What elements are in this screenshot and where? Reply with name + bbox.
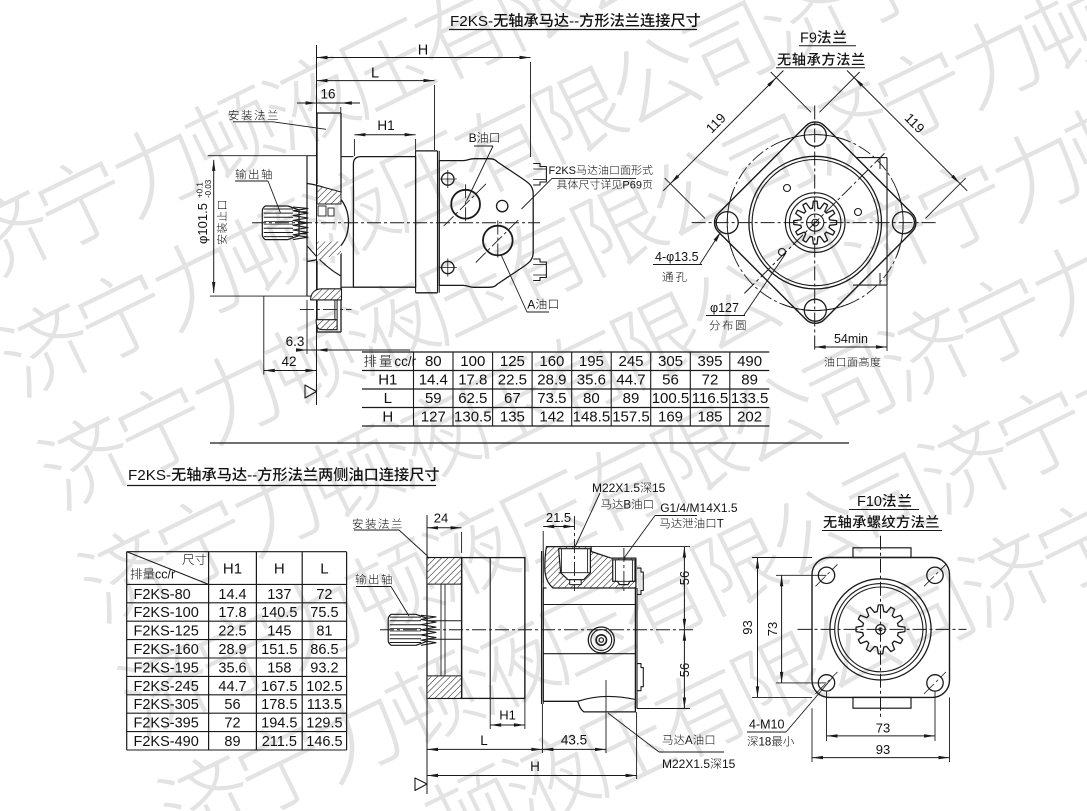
- svg-text:395: 395: [697, 353, 722, 370]
- svg-text:490: 490: [737, 353, 762, 370]
- svg-text:14.4: 14.4: [218, 587, 246, 603]
- svg-text:F2KS: F2KS: [549, 165, 577, 177]
- svg-text:F2KS-: F2KS-: [128, 467, 171, 484]
- svg-text:T: T: [717, 519, 724, 531]
- svg-text:129.5: 129.5: [306, 716, 342, 732]
- svg-text:F2KS-395: F2KS-395: [134, 716, 199, 732]
- svg-text:73: 73: [765, 622, 780, 636]
- svg-text:22.5: 22.5: [218, 624, 246, 640]
- svg-text:F2KS-245: F2KS-245: [134, 679, 199, 695]
- svg-text:169: 169: [658, 409, 683, 426]
- svg-text:44.7: 44.7: [616, 372, 645, 389]
- svg-text:211.5: 211.5: [262, 734, 297, 750]
- svg-text:148.5: 148.5: [573, 409, 611, 426]
- svg-text:158: 158: [267, 660, 291, 676]
- svg-text:-0.03: -0.03: [204, 179, 213, 198]
- svg-text:125: 125: [500, 353, 525, 370]
- svg-text:100.5: 100.5: [652, 390, 690, 407]
- svg-text:L: L: [480, 733, 488, 748]
- svg-text:151.5: 151.5: [261, 642, 297, 658]
- svg-text:A: A: [685, 735, 693, 747]
- svg-text:17.8: 17.8: [218, 605, 246, 621]
- svg-text:80: 80: [425, 353, 442, 370]
- svg-text:15: 15: [652, 481, 666, 495]
- svg-text:H: H: [418, 43, 428, 59]
- svg-text:59: 59: [425, 390, 442, 407]
- svg-text:21.5: 21.5: [546, 510, 571, 525]
- svg-text:157.5: 157.5: [612, 409, 650, 426]
- svg-text:18: 18: [759, 737, 772, 749]
- svg-text:93: 93: [876, 742, 890, 757]
- svg-text:202: 202: [737, 409, 762, 426]
- svg-text:44.7: 44.7: [218, 679, 246, 695]
- svg-text:195: 195: [579, 353, 604, 370]
- svg-text:F9: F9: [800, 31, 817, 47]
- svg-text:φ101.5: φ101.5: [195, 203, 210, 244]
- svg-text:178.5: 178.5: [261, 697, 297, 713]
- svg-text:42: 42: [281, 354, 296, 369]
- svg-text:100: 100: [460, 353, 485, 370]
- svg-text:P69: P69: [622, 180, 642, 192]
- svg-text:F2KS-195: F2KS-195: [134, 660, 199, 676]
- svg-text:H1: H1: [499, 708, 516, 723]
- svg-text:305: 305: [658, 353, 683, 370]
- svg-text:56: 56: [677, 571, 692, 585]
- svg-text:167.5: 167.5: [261, 679, 297, 695]
- svg-text:89: 89: [623, 390, 640, 407]
- svg-text:F2KS-160: F2KS-160: [134, 642, 199, 658]
- svg-text:127: 127: [421, 409, 446, 426]
- svg-text:72: 72: [702, 372, 719, 389]
- svg-text:72: 72: [224, 716, 240, 732]
- svg-text:130.5: 130.5: [454, 409, 492, 426]
- svg-text:75.5: 75.5: [310, 605, 338, 621]
- svg-text:H1: H1: [377, 118, 394, 133]
- svg-text:φ127: φ127: [710, 301, 739, 315]
- svg-text:22.5: 22.5: [498, 372, 527, 389]
- svg-text:--: --: [247, 467, 257, 484]
- svg-text:B: B: [623, 500, 631, 512]
- svg-text:H: H: [382, 409, 393, 426]
- svg-text:B: B: [469, 131, 477, 145]
- svg-text:H1: H1: [378, 372, 397, 389]
- svg-text:93.2: 93.2: [310, 660, 338, 676]
- svg-text:4-M10: 4-M10: [749, 718, 784, 732]
- svg-text:F2KS-490: F2KS-490: [134, 734, 199, 750]
- svg-text:142: 142: [539, 409, 564, 426]
- svg-text:245: 245: [618, 353, 643, 370]
- svg-text:43.5: 43.5: [561, 733, 587, 748]
- svg-text:4-φ13.5: 4-φ13.5: [655, 250, 699, 264]
- svg-text:73: 73: [876, 721, 890, 736]
- svg-text:160: 160: [539, 353, 564, 370]
- svg-text:146.5: 146.5: [306, 734, 342, 750]
- svg-text:194.5: 194.5: [261, 716, 297, 732]
- svg-text:M22X1.5: M22X1.5: [662, 757, 710, 771]
- svg-text:102.5: 102.5: [306, 679, 342, 695]
- svg-text:93: 93: [740, 620, 755, 634]
- svg-text:H: H: [530, 759, 540, 774]
- svg-text:135: 135: [500, 409, 525, 426]
- svg-text:F10: F10: [857, 494, 882, 510]
- svg-text:6.3: 6.3: [286, 334, 305, 349]
- svg-text:185: 185: [697, 409, 722, 426]
- svg-text:80: 80: [583, 390, 600, 407]
- svg-text:A: A: [527, 298, 535, 312]
- svg-text:73.5: 73.5: [537, 390, 566, 407]
- svg-text:140.5: 140.5: [261, 605, 297, 621]
- svg-text:133.5: 133.5: [731, 390, 769, 407]
- svg-text:F2KS-80: F2KS-80: [134, 587, 191, 603]
- svg-text:17.8: 17.8: [458, 372, 487, 389]
- svg-text:54min: 54min: [834, 332, 868, 346]
- svg-text:L: L: [384, 390, 392, 407]
- svg-text:16: 16: [320, 87, 335, 102]
- svg-text:86.5: 86.5: [310, 642, 338, 658]
- svg-text:--: --: [569, 13, 579, 30]
- svg-text:56: 56: [662, 372, 679, 389]
- svg-text:62.5: 62.5: [458, 390, 487, 407]
- svg-text:F2KS-100: F2KS-100: [134, 605, 199, 621]
- svg-text:89: 89: [224, 734, 240, 750]
- svg-text:cc/r: cc/r: [155, 568, 175, 582]
- svg-text:F2KS-125: F2KS-125: [134, 624, 199, 640]
- svg-text:89: 89: [741, 372, 758, 389]
- svg-text:56: 56: [677, 663, 692, 677]
- svg-text:F2KS-305: F2KS-305: [134, 697, 199, 713]
- svg-text:81: 81: [316, 624, 332, 640]
- svg-text:15: 15: [722, 757, 736, 771]
- svg-text:35.6: 35.6: [577, 372, 606, 389]
- svg-text:35.6: 35.6: [218, 660, 246, 676]
- svg-text:137: 137: [267, 587, 291, 603]
- svg-text:H: H: [274, 561, 285, 578]
- svg-text:24: 24: [434, 511, 448, 526]
- svg-text:cc/r: cc/r: [394, 354, 416, 369]
- svg-text:M22X1.5: M22X1.5: [592, 481, 640, 495]
- svg-text:116.5: 116.5: [692, 390, 728, 407]
- svg-text:145: 145: [267, 624, 291, 640]
- svg-text:67: 67: [504, 390, 521, 407]
- svg-text:F2KS-: F2KS-: [450, 13, 493, 30]
- svg-text:L: L: [320, 561, 328, 578]
- svg-text:G1/4/M14X1.5: G1/4/M14X1.5: [660, 501, 738, 515]
- svg-text:113.5: 113.5: [307, 697, 342, 713]
- svg-text:28.9: 28.9: [537, 372, 566, 389]
- svg-text:H1: H1: [223, 561, 242, 578]
- svg-text:56: 56: [224, 697, 240, 713]
- svg-text:14.4: 14.4: [419, 372, 448, 389]
- svg-text:72: 72: [316, 587, 332, 603]
- svg-text:L: L: [371, 66, 379, 82]
- svg-text:28.9: 28.9: [218, 642, 246, 658]
